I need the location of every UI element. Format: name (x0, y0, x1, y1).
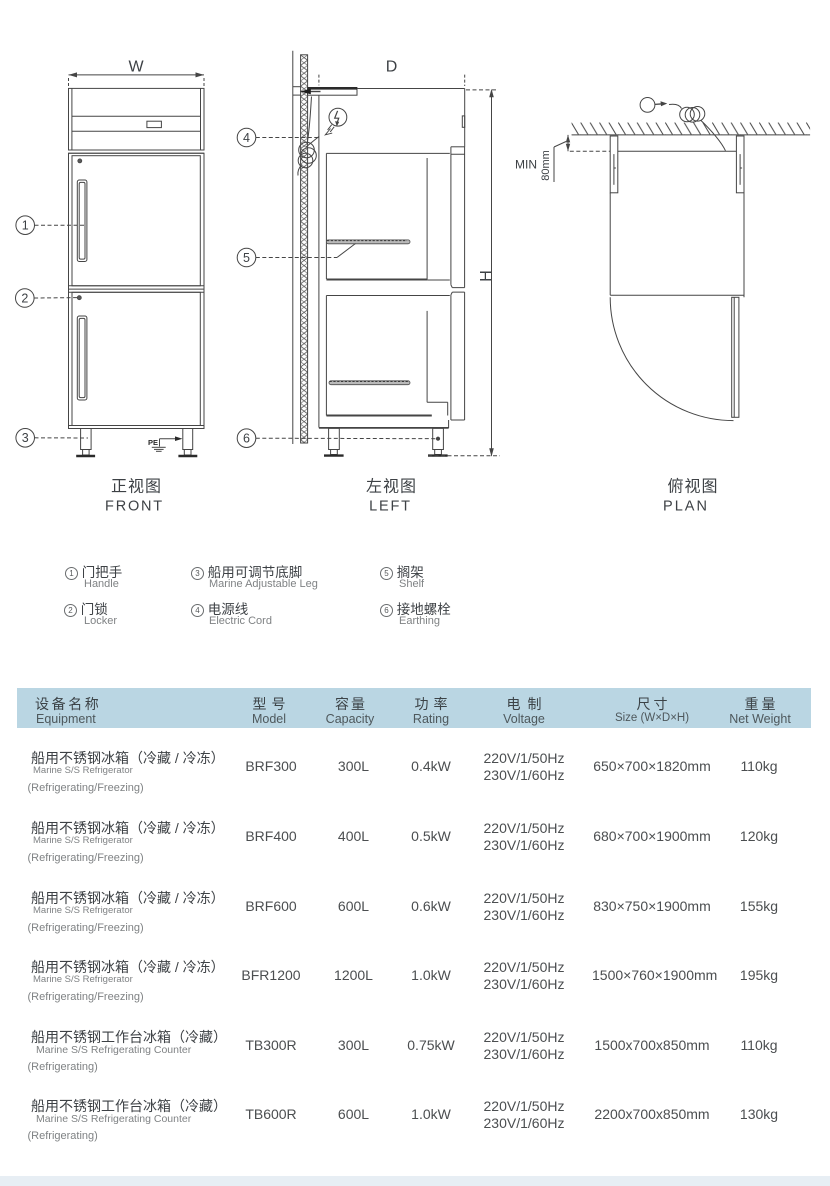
svg-text:PLAN: PLAN (663, 499, 709, 515)
svg-text:1: 1 (22, 219, 29, 233)
svg-text:2: 2 (21, 291, 28, 305)
svg-text:H: H (478, 270, 495, 282)
svg-text:5: 5 (243, 251, 250, 265)
svg-text:MIN: MIN (515, 158, 537, 172)
svg-text:D: D (386, 59, 398, 76)
svg-text:4: 4 (243, 131, 250, 145)
svg-text:W: W (128, 59, 144, 76)
svg-text:左视图: 左视图 (366, 478, 417, 496)
svg-text:PE: PE (148, 438, 158, 447)
svg-text:FRONT: FRONT (105, 499, 164, 515)
svg-text:6: 6 (243, 432, 250, 446)
svg-text:正视图: 正视图 (111, 478, 162, 496)
svg-text:俯视图: 俯视图 (667, 478, 718, 496)
svg-text:3: 3 (22, 431, 29, 445)
svg-text:LEFT: LEFT (369, 499, 412, 515)
svg-text:80mm: 80mm (540, 150, 552, 181)
